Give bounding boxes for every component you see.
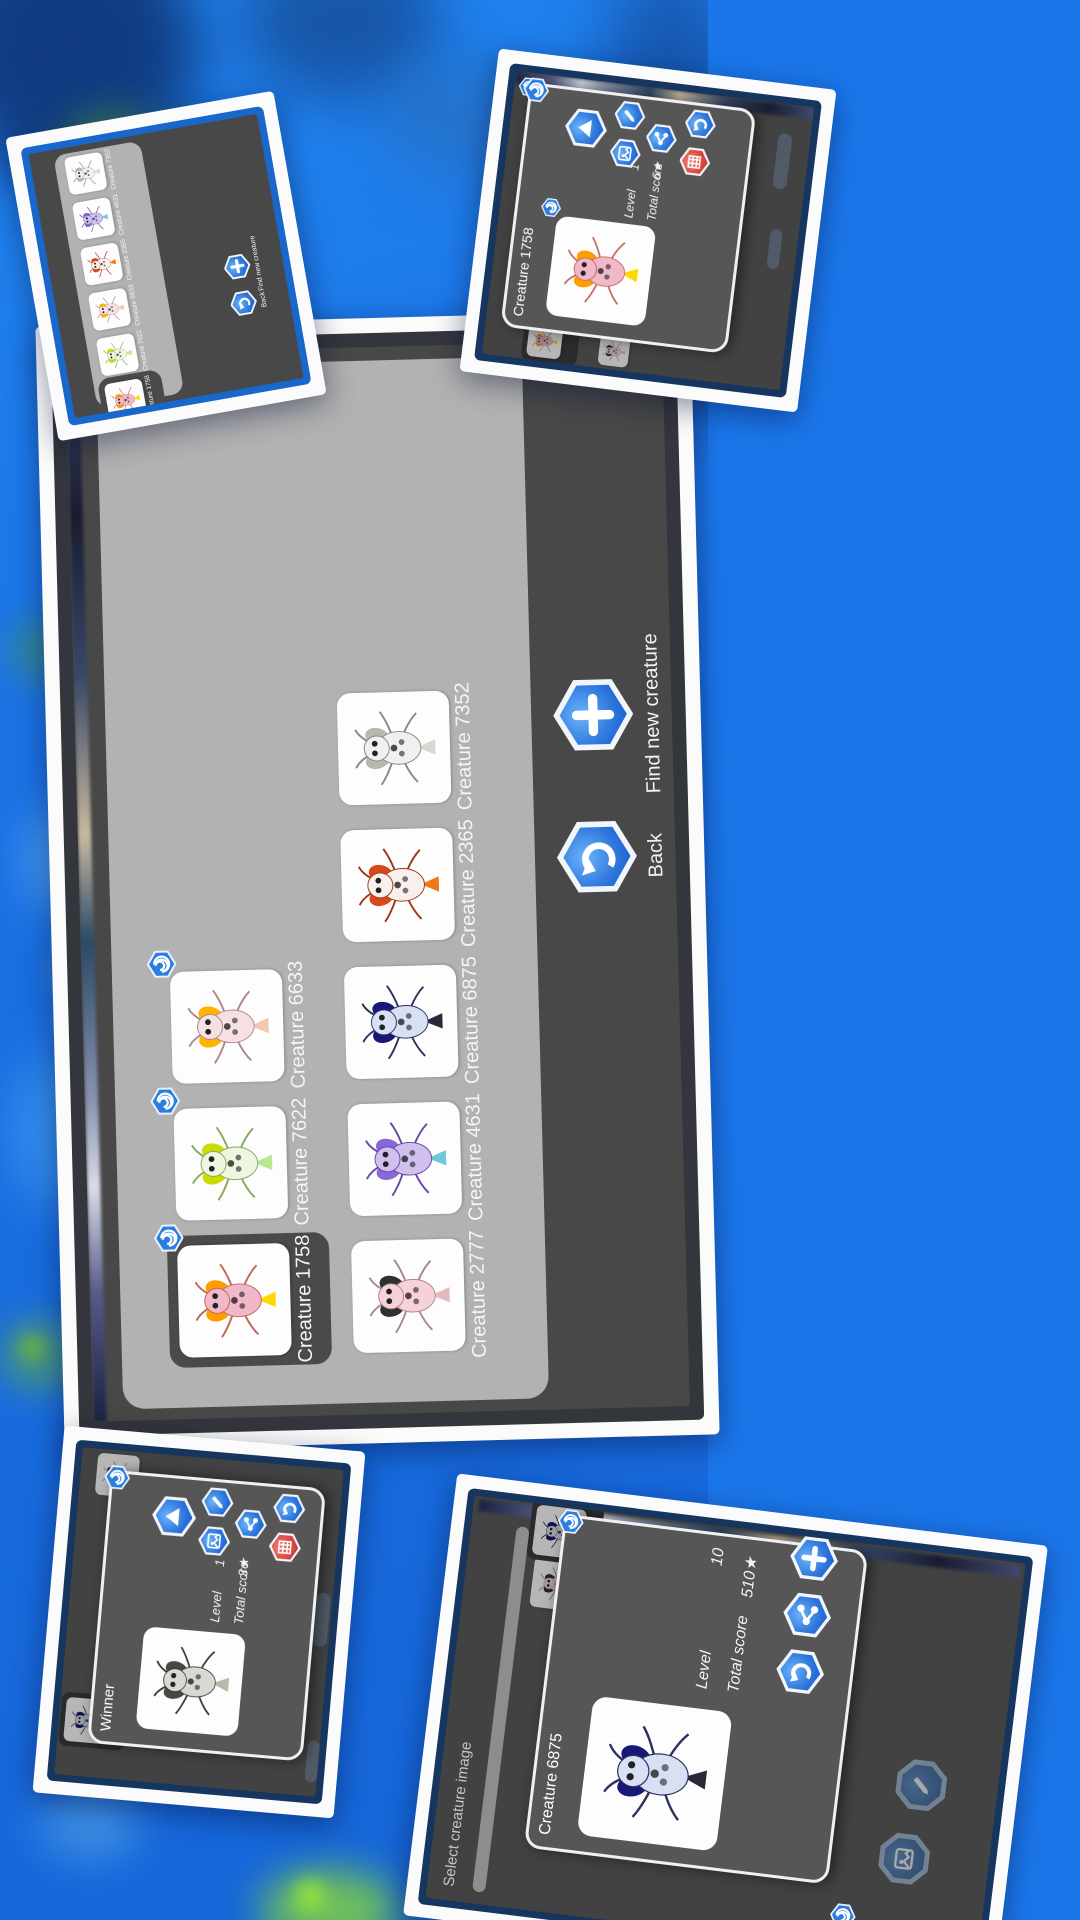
- creature-detail-screen: Creature 1758 Level: [482, 71, 814, 390]
- level-value: 10: [708, 1546, 728, 1566]
- star-icon: ★: [742, 1555, 761, 1571]
- creature-card[interactable]: [350, 1238, 465, 1353]
- detail-screen-viewport: Winner Level 1 Total score: [54, 1447, 344, 1797]
- grid-icon: [678, 144, 713, 179]
- creature-image: [355, 1109, 453, 1207]
- image-button-disabled[interactable]: [876, 1830, 932, 1886]
- screenshot-bezel: Winner Level 1 Total score: [47, 1440, 352, 1805]
- creature-card[interactable]: [173, 1106, 288, 1221]
- back-button[interactable]: [272, 1491, 307, 1526]
- up-icon: [150, 1493, 198, 1541]
- find-new-creature-button[interactable]: [787, 1531, 840, 1584]
- plus-icon: [552, 673, 634, 755]
- creature-image: [75, 200, 113, 238]
- mini-collection-viewport: Creature 1758 Creature 7622 Creature 663…: [28, 114, 303, 418]
- creature-image: [587, 1706, 721, 1840]
- creature-card-label: Creature 7352: [451, 675, 481, 816]
- pencil-icon: [893, 1757, 949, 1813]
- collection-screen: Creature 1758 Creature 7622 Creature 6: [65, 339, 690, 1421]
- background-blob: [260, 1870, 400, 1920]
- collection-screen-viewport: Creature 1758 Creature 7622 Creature 6: [65, 339, 690, 1421]
- dimmed-button-stub: [766, 228, 783, 269]
- level-up-button[interactable]: [563, 104, 610, 151]
- creature-image: [351, 972, 449, 1070]
- polaroid-center: Creature 1758 Creature 7622 Creature 6: [35, 310, 719, 1452]
- back-button[interactable]: [683, 106, 718, 141]
- background-blob: [295, 1880, 325, 1910]
- star-icon: ★: [236, 1557, 252, 1570]
- photo-icon: [608, 135, 643, 170]
- image-button[interactable]: [197, 1524, 232, 1559]
- share-button[interactable]: [233, 1507, 268, 1542]
- screen-title: Select creature image: [440, 1740, 475, 1887]
- back-icon: [773, 1644, 826, 1697]
- star-icon: ★: [650, 160, 665, 172]
- edit-button-disabled[interactable]: [893, 1757, 949, 1813]
- total-score-value: 510★: [736, 1555, 761, 1598]
- creature-image: [83, 245, 121, 283]
- creature-image: [553, 223, 649, 319]
- spiral-badge-icon: [556, 1507, 585, 1536]
- promo-canvas: Creature 1758 Creature 7622 Creature 6: [0, 0, 1080, 1920]
- plus-icon: [222, 251, 253, 282]
- spiral-badge-icon: [103, 1463, 131, 1491]
- photo-icon: [876, 1830, 932, 1886]
- creature-detail-dialog: Creature 6875 Level 10 Total: [523, 1513, 868, 1884]
- creature-image: [344, 698, 442, 796]
- screenshot-bezel: Creature 1758 Level: [474, 63, 822, 398]
- creature-card[interactable]: [340, 827, 455, 942]
- dialog-title: Creature 1758: [510, 226, 537, 317]
- select-image-viewport: Select creature image: [425, 1496, 1025, 1920]
- dialog-title: Winner: [97, 1683, 118, 1732]
- creature-card-label: Creature 6633: [284, 954, 314, 1095]
- creature-detail-dialog: Creature 1758 Level: [500, 82, 756, 354]
- creature-card[interactable]: [96, 333, 140, 377]
- polaroid-top-right: Creature 1758 Level: [459, 48, 836, 412]
- creature-image: [99, 336, 137, 374]
- select-creature-image-screen: Select creature image: [431, 1499, 1021, 1920]
- share-button[interactable]: [780, 1588, 833, 1641]
- creature-image: [107, 381, 145, 418]
- back-icon: [555, 815, 637, 897]
- find-new-creature-button[interactable]: [552, 673, 634, 755]
- photo-icon: [197, 1524, 232, 1559]
- detail-screen-viewport: Creature 1758 Level: [482, 71, 814, 390]
- creature-detail-screen: Winner Level 1 Total score: [54, 1447, 344, 1797]
- creature-card: [136, 1626, 247, 1737]
- creature-card-label: Creature 2777: [465, 1223, 495, 1364]
- creature-card-label: Creature 7622: [287, 1091, 317, 1232]
- creature-image: [181, 1114, 279, 1212]
- level-label: Level: [621, 188, 638, 218]
- spiral-badge-icon: [828, 1901, 857, 1920]
- spiral-badge-icon: [522, 75, 551, 104]
- creature-card-label: Creature 4631: [461, 1086, 491, 1227]
- creature-detail-dialog: Winner Level 1 Total score: [87, 1470, 326, 1762]
- image-button[interactable]: [608, 135, 643, 170]
- back-icon: [272, 1491, 307, 1526]
- share-icon: [780, 1588, 833, 1641]
- polaroid-top-left: Creature 1758 Creature 7622 Creature 663…: [5, 91, 326, 442]
- delete-button[interactable]: [268, 1530, 303, 1565]
- screenshot-bezel: Creature 1758 Creature 7622 Creature 663…: [20, 106, 311, 426]
- creature-image: [359, 1246, 457, 1344]
- back-icon: [228, 287, 259, 318]
- creature-card-label: Creature 6875: [458, 949, 488, 1090]
- creature-card-label: Creature 1758: [291, 1228, 321, 1369]
- creature-card[interactable]: [176, 1242, 291, 1357]
- creature-card[interactable]: [72, 197, 116, 241]
- creature-card[interactable]: [343, 964, 458, 1079]
- creature-image: [143, 1634, 238, 1729]
- dimmed-button-stub: [304, 1740, 320, 1783]
- background-blob: [20, 1335, 44, 1359]
- back-icon: [683, 106, 718, 141]
- edit-button[interactable]: [613, 98, 648, 133]
- progress-bar[interactable]: [472, 1525, 530, 1892]
- grid-icon: [268, 1530, 303, 1565]
- level-label: Level: [693, 1649, 716, 1689]
- creature-card[interactable]: [336, 690, 451, 805]
- creature-image: [348, 835, 446, 933]
- creature-image: [67, 154, 105, 192]
- creature-card[interactable]: [64, 152, 108, 196]
- mini-collection-screen: Creature 1758 Creature 7622 Creature 663…: [28, 114, 303, 418]
- creature-card: [545, 215, 656, 326]
- creature-card-label: Creature 2365: [454, 812, 484, 953]
- screenshot-bezel: Select creature image: [418, 1488, 1034, 1920]
- creature-image: [185, 1251, 283, 1349]
- back-button[interactable]: [773, 1644, 826, 1697]
- level-value: 1: [212, 1559, 228, 1568]
- creature-card: [576, 1695, 732, 1851]
- find-new-creature-label: Find new creature: [638, 617, 666, 808]
- dialog-title: Creature 6875: [536, 1732, 566, 1836]
- creature-card[interactable]: [80, 242, 124, 286]
- creature-card[interactable]: [347, 1101, 462, 1216]
- share-icon: [644, 121, 679, 156]
- edit-button[interactable]: [200, 1485, 235, 1520]
- polaroid-bottom-left: Winner Level 1 Total score: [33, 1426, 366, 1819]
- creature-card[interactable]: [88, 287, 132, 331]
- pencil-icon: [613, 98, 648, 133]
- level-label: Level: [207, 1591, 225, 1623]
- creature-card[interactable]: [104, 378, 148, 418]
- delete-button[interactable]: [678, 144, 713, 179]
- pencil-icon: [200, 1485, 235, 1520]
- share-icon: [233, 1507, 268, 1542]
- creature-image: [91, 290, 129, 328]
- total-score-value: 6★: [649, 160, 665, 179]
- total-score-label: Total score: [725, 1614, 752, 1693]
- back-button[interactable]: [555, 815, 637, 897]
- level-up-button[interactable]: [150, 1493, 198, 1541]
- polaroid-bottom-right: Select creature image: [403, 1473, 1048, 1920]
- plus-icon: [787, 1531, 840, 1584]
- screenshot-bezel: Creature 1758 Creature 7622 Creature 6: [51, 325, 704, 1436]
- back-button[interactable]: [228, 287, 259, 318]
- creature-card[interactable]: [169, 969, 284, 1084]
- creature-image: [178, 977, 276, 1075]
- find-new-creature-button[interactable]: [222, 251, 253, 282]
- total-score-value: 3★: [235, 1557, 253, 1577]
- dimmed-button-stub: [772, 132, 793, 189]
- up-icon: [563, 104, 610, 151]
- share-button[interactable]: [644, 121, 679, 156]
